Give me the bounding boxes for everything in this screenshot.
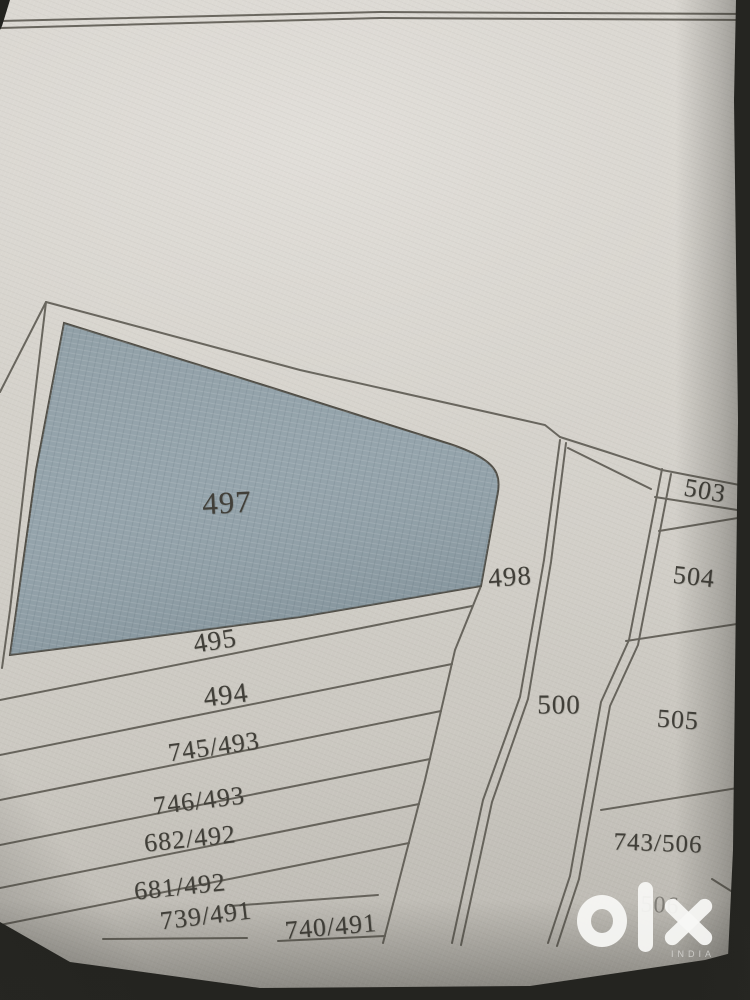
olx-country-label: INDIA [671,949,715,959]
plot-label-740-491: 740/491 [284,908,378,946]
map-photo: 497498495494745/493746/493682/492681/492… [0,0,750,1000]
plot-label-745-493: 745/493 [166,726,262,769]
plot-label-503: 503 [682,473,729,510]
olx-letter-o [577,895,627,947]
olx-watermark: INDIA [573,878,721,958]
plot-label-743-506: 743/506 [613,828,703,859]
plot-labels: 497498495494745/493746/493682/492681/492… [0,0,750,1000]
plot-label-494: 494 [202,677,251,714]
plot-label-500: 500 [537,690,581,721]
plot-label-495: 495 [191,622,239,659]
plot-label-498: 498 [487,560,533,594]
plot-label-497: 497 [201,484,252,523]
olx-letter-l [638,882,653,952]
olx-letter-x [661,894,717,948]
plot-label-682-492: 682/492 [143,819,238,858]
plot-label-746-493: 746/493 [151,780,246,821]
plot-label-505: 505 [656,704,700,737]
plot-label-504: 504 [672,560,717,594]
